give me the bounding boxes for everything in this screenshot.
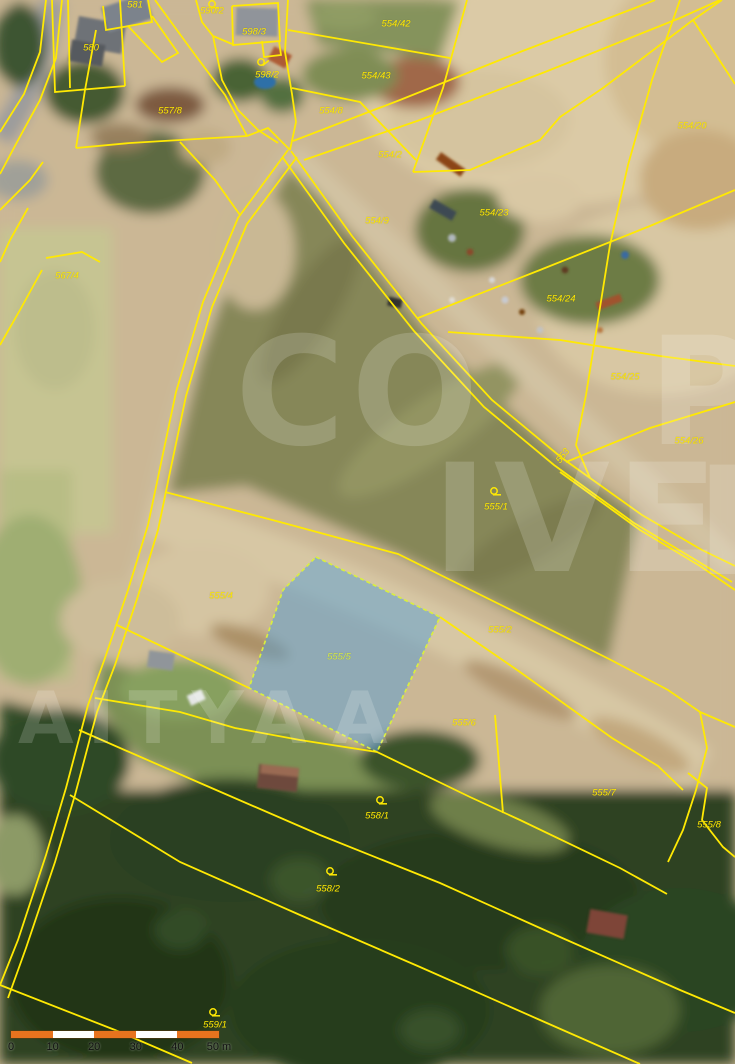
scale-bar-tick: 40: [171, 1041, 183, 1053]
scale-bar: 01020304050 m: [11, 1031, 219, 1038]
scale-bar-segment: [94, 1031, 136, 1038]
scale-bar-tick: 20: [88, 1041, 100, 1053]
scale-bar-tick: 50 m: [207, 1041, 231, 1053]
scale-bar-tick: 30: [130, 1041, 142, 1053]
scale-bar-tick: 10: [46, 1041, 58, 1053]
scale-bar-segments: [11, 1031, 219, 1038]
scale-bar-segment: [177, 1031, 219, 1038]
map-canvas[interactable]: COPIVEEAITYAA 581590/2598/3580598/2557/8…: [0, 0, 735, 1064]
scale-bar-segment: [136, 1031, 178, 1038]
terrain-layer: [0, 0, 735, 1064]
scale-bar-segment: [53, 1031, 95, 1038]
scale-bar-tick: 0: [8, 1041, 14, 1053]
scale-bar-segment: [11, 1031, 53, 1038]
aerial-imagery: [0, 0, 735, 1064]
